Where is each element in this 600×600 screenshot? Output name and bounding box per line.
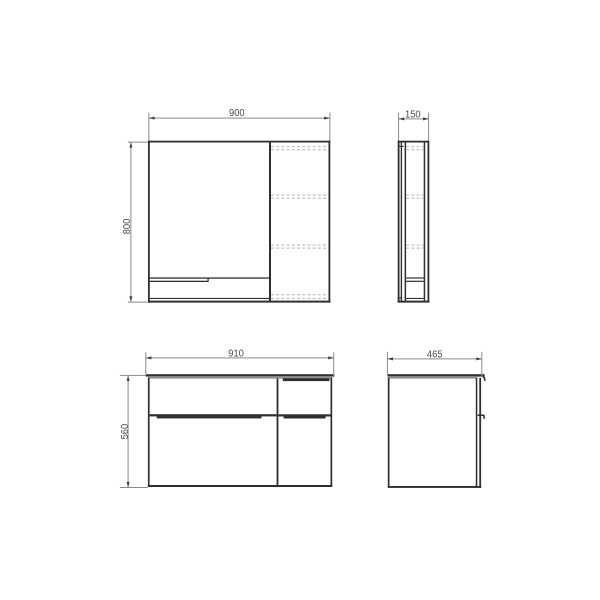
svg-text:800: 800 <box>122 218 133 234</box>
svg-text:465: 465 <box>427 350 443 361</box>
svg-text:150: 150 <box>405 109 421 120</box>
svg-text:910: 910 <box>228 349 244 360</box>
svg-text:560: 560 <box>120 423 131 439</box>
svg-text:900: 900 <box>229 108 245 119</box>
